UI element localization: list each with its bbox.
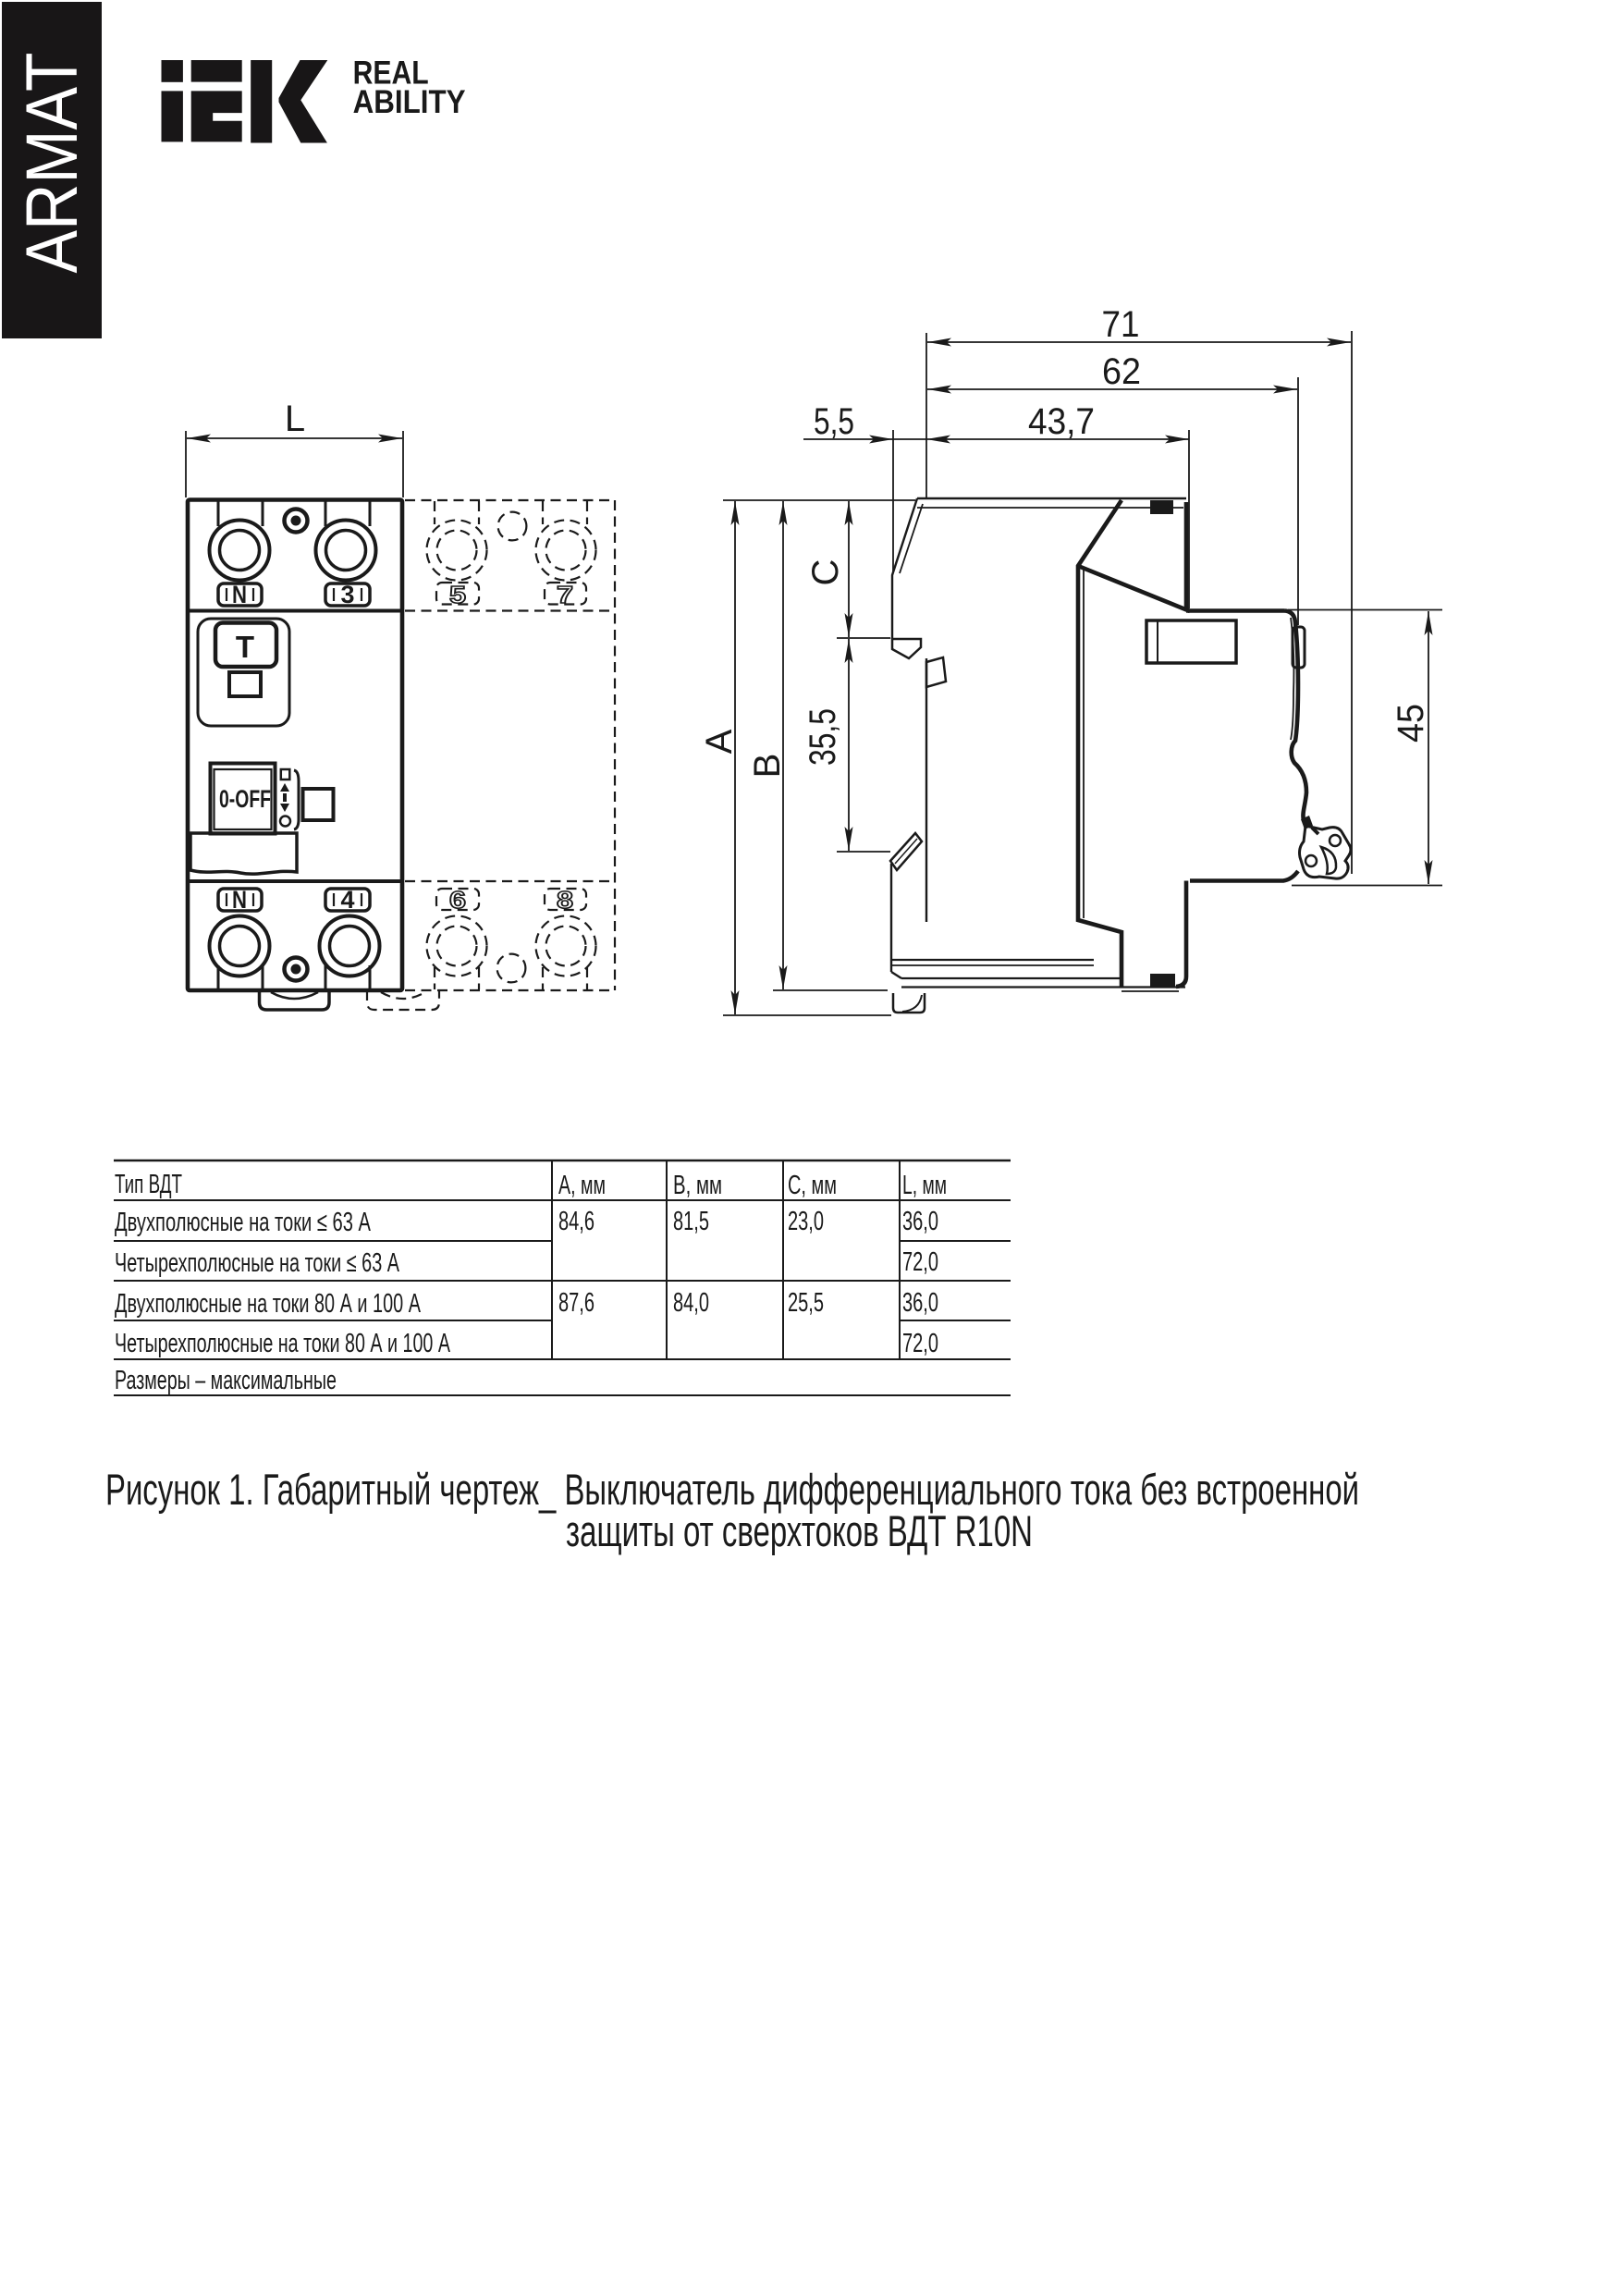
- svg-text:Четырехполюсные на токи ≤ 63 А: Четырехполюсные на токи ≤ 63 А: [115, 1248, 399, 1278]
- svg-text:72,0: 72,0: [902, 1247, 938, 1277]
- svg-text:8: 8: [557, 886, 573, 914]
- svg-text:36,0: 36,0: [902, 1288, 938, 1318]
- svg-text:0-OFF: 0-OFF: [219, 785, 271, 813]
- svg-text:84,6: 84,6: [558, 1207, 594, 1236]
- svg-text:36,0: 36,0: [902, 1207, 938, 1236]
- svg-text:Тип ВДТ: Тип ВДТ: [115, 1170, 182, 1199]
- svg-text:N: N: [232, 581, 247, 608]
- svg-text:43,7: 43,7: [1028, 401, 1095, 442]
- svg-text:ABILITY: ABILITY: [353, 84, 466, 120]
- svg-text:В, мм: В, мм: [673, 1171, 722, 1200]
- svg-text:84,0: 84,0: [673, 1288, 709, 1318]
- svg-text:72,0: 72,0: [902, 1329, 938, 1358]
- svg-text:N: N: [232, 886, 247, 914]
- svg-text:23,0: 23,0: [788, 1207, 824, 1236]
- svg-text:Двухполюсные на токи ≤ 63 А: Двухполюсные на токи ≤ 63 А: [115, 1208, 371, 1237]
- svg-text:35,5: 35,5: [803, 708, 843, 766]
- svg-text:Размеры – максимальные: Размеры – максимальные: [115, 1366, 337, 1395]
- svg-text:A: A: [699, 729, 740, 754]
- svg-text:87,6: 87,6: [558, 1288, 594, 1318]
- svg-text:Четырехполюсные на токи 80 А и: Четырехполюсные на токи 80 А и 100 А: [115, 1329, 450, 1358]
- svg-text:5,5: 5,5: [814, 401, 854, 442]
- svg-text:С, мм: С, мм: [788, 1171, 837, 1200]
- svg-text:ARMAT: ARMAT: [10, 53, 92, 274]
- svg-text:3: 3: [341, 581, 355, 608]
- svg-text:71: 71: [1102, 304, 1140, 345]
- svg-text:L, мм: L, мм: [902, 1171, 947, 1200]
- svg-text:25,5: 25,5: [788, 1288, 824, 1318]
- svg-text:4: 4: [341, 886, 355, 914]
- svg-text:T: T: [236, 630, 254, 664]
- svg-text:6: 6: [449, 886, 466, 914]
- svg-text:защиты от сверхтоков ВДТ R10N: защиты от сверхтоков ВДТ R10N: [566, 1506, 1033, 1555]
- svg-text:А, мм: А, мм: [558, 1171, 606, 1200]
- svg-text:45: 45: [1391, 704, 1431, 743]
- svg-text:5: 5: [449, 581, 466, 608]
- svg-text:L: L: [285, 399, 305, 439]
- svg-text:C: C: [805, 559, 846, 586]
- svg-text:81,5: 81,5: [673, 1207, 709, 1236]
- svg-text:62: 62: [1102, 351, 1141, 392]
- svg-text:Двухполюсные на токи 80 А и 10: Двухполюсные на токи 80 А и 100 А: [115, 1289, 421, 1319]
- svg-text:B: B: [747, 754, 788, 779]
- svg-text:7: 7: [557, 581, 573, 608]
